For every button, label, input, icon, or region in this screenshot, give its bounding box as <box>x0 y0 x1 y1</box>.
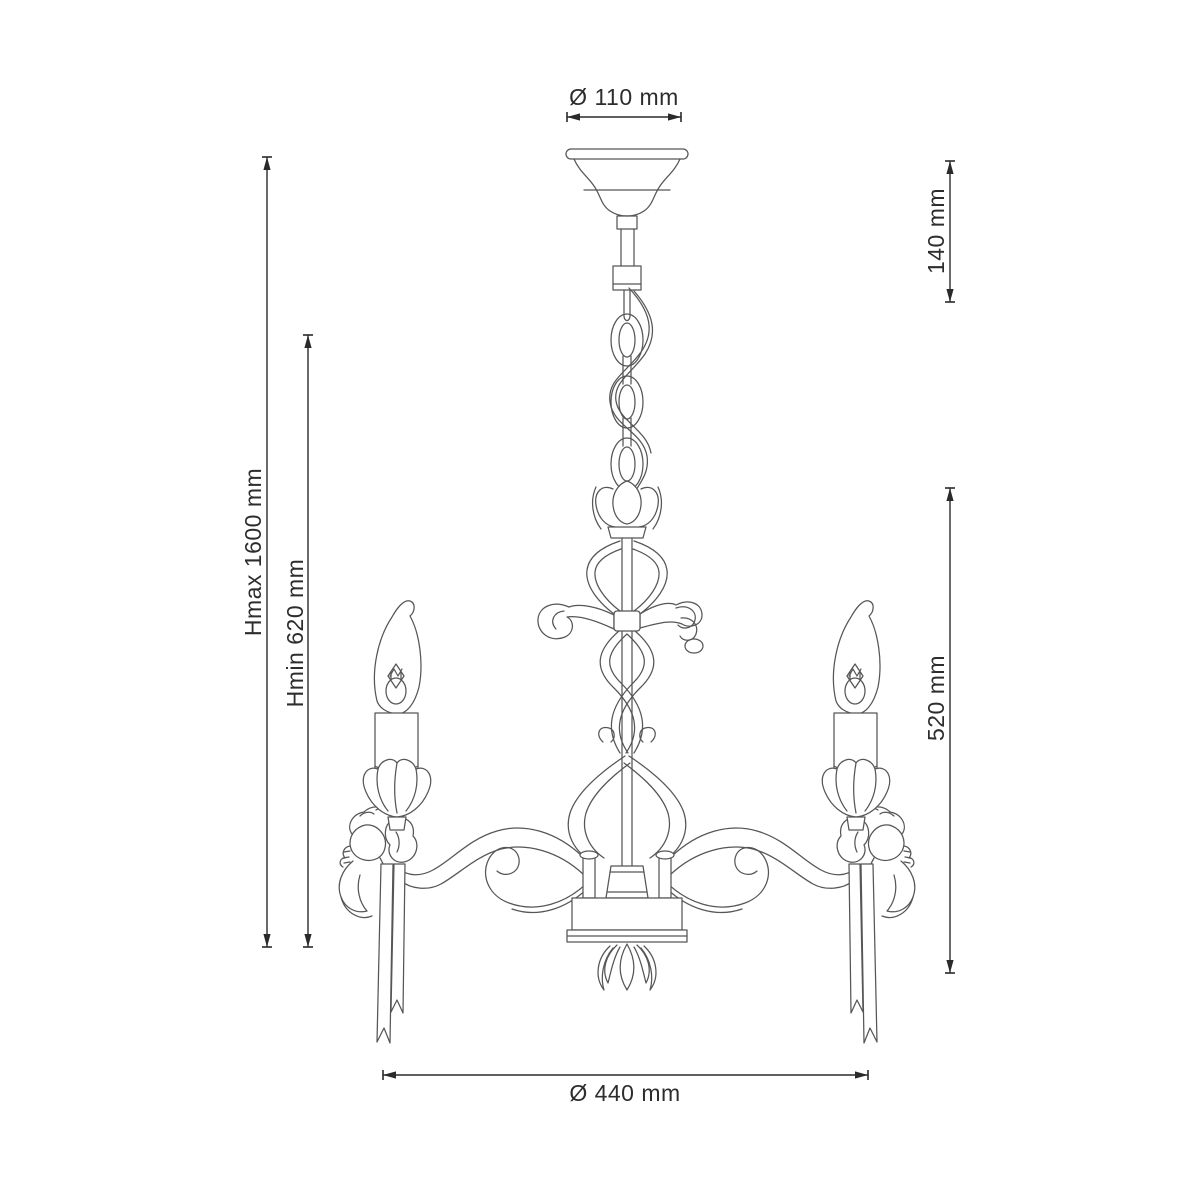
ceiling-canopy <box>566 149 688 229</box>
lower-flourish <box>568 727 685 862</box>
dimension-fixture-diameter: Ø 440 mm <box>383 1075 868 1106</box>
dimension-height-max: Hmax 1600 mm <box>240 157 267 947</box>
arm-left <box>399 828 590 912</box>
candle-right <box>822 601 889 830</box>
dimension-height-min: Hmin 620 mm <box>282 335 308 947</box>
suspension-rod <box>613 229 641 290</box>
chain <box>610 288 653 505</box>
dim-label-canopy-diameter: Ø 110 mm <box>569 84 679 110</box>
arm-sockets <box>580 851 674 898</box>
dimension-canopy-drop: 140 mm <box>923 161 950 302</box>
spiral-ribbon <box>600 631 654 753</box>
dim-label-fixture-height: 520 mm <box>923 655 949 741</box>
dimension-fixture-height: 520 mm <box>923 488 950 973</box>
chandelier-drawing <box>339 149 915 1043</box>
candle-left <box>363 601 430 830</box>
tulip-ornament <box>593 481 662 538</box>
body-drum <box>567 898 687 942</box>
dimension-canopy-diameter: Ø 110 mm <box>567 84 681 117</box>
ribbon-bow <box>538 602 703 653</box>
dim-label-height-max: Hmax 1600 mm <box>240 468 266 636</box>
diagram-canvas: Ø 110 mm 140 mm Hmax 1600 mm Hmin 620 mm… <box>0 0 1200 1200</box>
dim-label-height-min: Hmin 620 mm <box>282 559 308 708</box>
bottom-finial <box>598 944 656 990</box>
arm-right <box>664 828 855 912</box>
dim-label-canopy-drop: 140 mm <box>923 188 949 274</box>
dim-label-fixture-diameter: Ø 440 mm <box>569 1080 680 1106</box>
